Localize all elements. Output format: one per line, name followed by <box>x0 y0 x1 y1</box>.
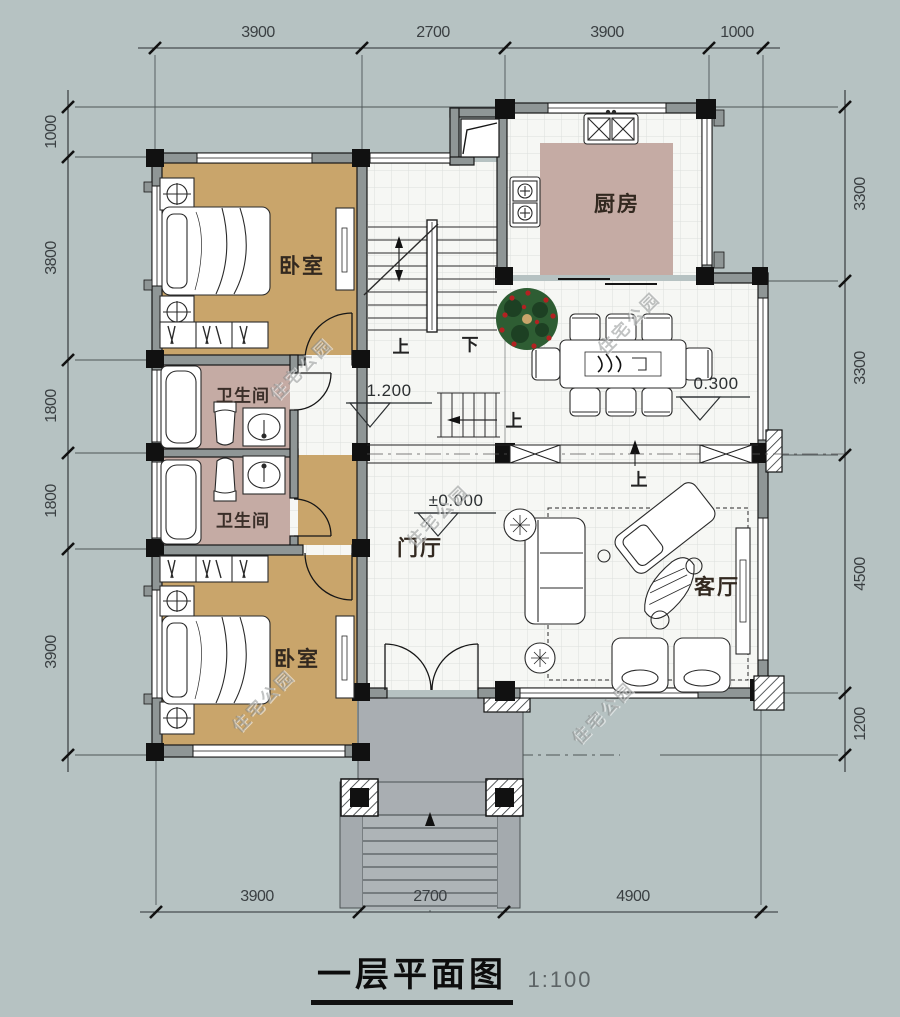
dim-left-1: 1000 <box>43 115 61 149</box>
dim-top-3: 3900 <box>590 24 624 42</box>
room-label-kitchen: 厨房 <box>594 188 640 218</box>
dim-left-2: 3800 <box>43 241 61 275</box>
room-label-bathroom-upper: 卫生间 <box>216 382 270 407</box>
bathtub-lower <box>161 460 201 544</box>
kitchen-stove <box>510 177 540 227</box>
dim-left-4: 1800 <box>43 484 61 518</box>
elevation-dining: 0.300 <box>693 374 738 394</box>
dim-right-3: 4500 <box>852 557 870 591</box>
wardrobe-bottom <box>160 556 268 582</box>
porch-and-entry-stair <box>340 697 530 910</box>
duct-interior <box>461 119 499 157</box>
dim-top-1: 3900 <box>241 24 275 42</box>
elevation-stair-landing: 1.200 <box>366 381 411 401</box>
basin-upper <box>243 408 285 446</box>
stair-up-label: 上 <box>393 333 410 358</box>
dim-top-4: 1000 <box>720 24 754 42</box>
dim-bottom-1: 3900 <box>240 888 274 906</box>
room-label-bedroom-top: 卧室 <box>279 250 325 280</box>
wardrobe-top <box>160 322 268 348</box>
hall-floor <box>298 455 357 545</box>
floor-plan-sheet: 3900 2700 3900 1000 3900 2700 4900 1000 … <box>0 0 900 1017</box>
step-up-label-foyer: 上 <box>506 407 523 432</box>
dim-right-4: 1200 <box>852 707 870 741</box>
bathtub-upper <box>161 366 201 448</box>
dim-left-3: 1800 <box>43 389 61 423</box>
drawing-scale: 1:100 <box>527 967 592 993</box>
stair-down-label: 下 <box>462 331 479 356</box>
step-up-label-living: 上 <box>631 466 648 491</box>
dim-right-2: 3300 <box>852 351 870 385</box>
toilet-lower <box>214 458 236 501</box>
cabinet-bottom <box>336 616 354 698</box>
dim-bottom-2: 2700 <box>413 888 447 906</box>
drawing-title: 一层平面图 <box>311 947 513 1005</box>
armchair <box>674 638 730 692</box>
room-label-bathroom-lower: 卫生间 <box>216 507 270 532</box>
dim-right-1: 3300 <box>852 177 870 211</box>
dim-bottom-3: 4900 <box>616 888 650 906</box>
potted-plant <box>496 288 558 350</box>
basin-lower <box>243 456 285 494</box>
room-label-living: 客厅 <box>694 571 740 601</box>
toilet-upper <box>214 402 236 445</box>
dim-top-2: 2700 <box>416 24 450 42</box>
cabinet-top <box>336 208 354 290</box>
sofa <box>525 518 585 624</box>
kitchen-sink <box>584 110 638 144</box>
dim-left-5: 3900 <box>43 635 61 669</box>
